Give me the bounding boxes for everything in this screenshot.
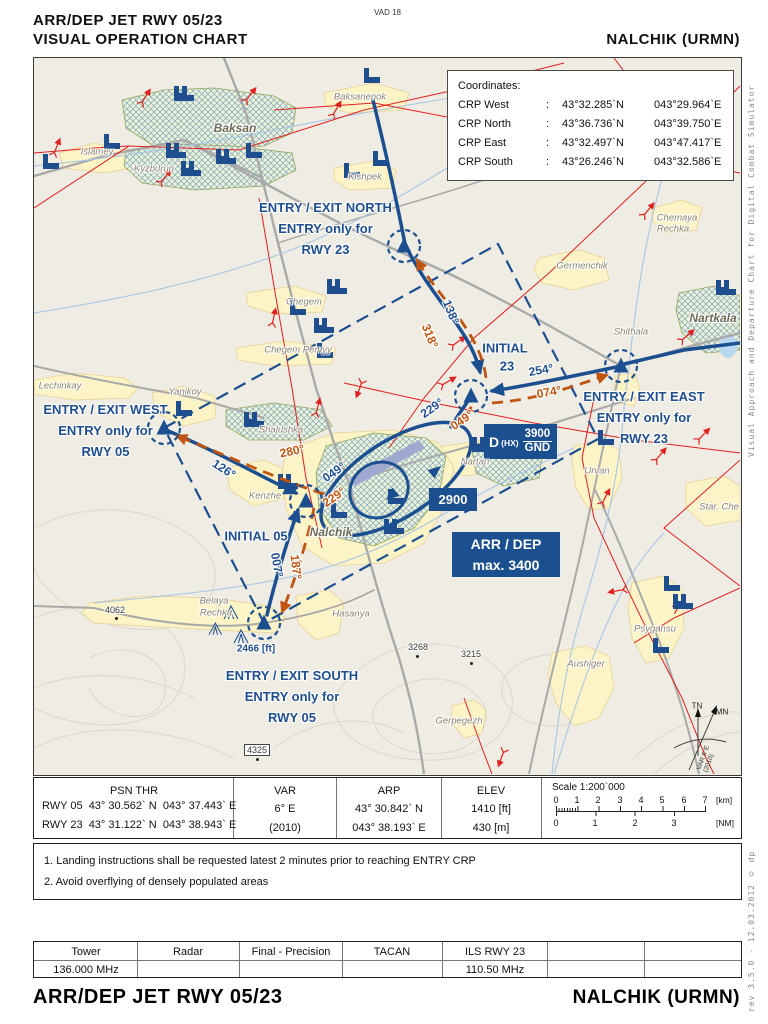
place-chegem-pervyy: Chegem Pervyy	[264, 345, 332, 356]
place-shalushka: Shalushka	[259, 425, 303, 436]
ils-frequency: 110.50 MHz	[466, 964, 525, 976]
place-nalchik: Nalchik	[310, 525, 353, 539]
entry-label-east: ENTRY / EXIT EAST ENTRY only for RWY 23	[578, 386, 710, 449]
spot-height-4062: 4062	[105, 605, 125, 615]
psn-rwy23-row: RWY 23 43° 31.122` N 043° 38.943` E	[42, 819, 236, 831]
place-nartkala: Nartkala	[689, 311, 736, 325]
place-yanikoy: Yanikoy	[168, 387, 201, 398]
spot-height-3268: 3268	[408, 642, 428, 652]
arp-lon: 043° 38.193` E	[352, 822, 426, 834]
tower-header: Tower	[71, 946, 100, 958]
tower-frequency: 136.000 MHz	[53, 964, 118, 976]
place-chegem: Chegem	[286, 297, 322, 308]
divider	[644, 942, 645, 977]
place-lechinkay: Lechinkay	[39, 381, 82, 392]
divider	[34, 960, 741, 961]
arrdep-max-alt-box: ARR / DEP max. 3400	[452, 532, 560, 577]
footer-airport: NALCHIK (URMN)	[573, 987, 740, 1009]
spot-height-4325: 4325	[244, 744, 270, 756]
spot-dot-4062	[115, 617, 118, 620]
note-1: 1. Landing instructions shall be request…	[44, 851, 731, 872]
arp-lat: 43° 30.842` N	[355, 803, 423, 815]
place-star-che: Star. Che	[699, 502, 739, 513]
divider	[547, 942, 548, 977]
entry-label-north: ENTRY / EXIT NORTH ENTRY only for RWY 23	[233, 197, 418, 260]
place-belaya-rechka-2: Rechka	[200, 608, 232, 619]
elev-ft: 1410 [ft]	[471, 803, 511, 815]
divider	[541, 778, 542, 838]
initial-05-label: INITIAL 05	[224, 526, 287, 547]
psn-rwy05-row: RWY 05 43° 30.562` N 043° 37.443` E	[42, 800, 236, 812]
var-year: (2010)	[269, 822, 301, 834]
magnetic-north-label: MN	[716, 708, 728, 717]
divider	[137, 942, 138, 977]
place-urvan: Urvan	[584, 466, 609, 477]
divider	[442, 942, 443, 977]
scale-bar: Scale 1:200`000 0 1 2 3 4 5 6 7 [km] 0 1…	[550, 782, 738, 836]
crp-west-row: CRP West:43°32.285`N043°29.964`E	[458, 96, 723, 115]
elev-header: ELEV	[477, 785, 505, 797]
divider	[336, 778, 337, 838]
arp-header: ARP	[378, 785, 401, 797]
divider	[441, 778, 442, 838]
place-kishpek: Kishpek	[348, 172, 382, 183]
course-187: 187°	[288, 554, 305, 580]
km-unit: [km]	[716, 795, 732, 805]
place-baksanenok: Baksanenok	[334, 92, 386, 103]
var-header: VAR	[274, 785, 296, 797]
chart-title: ARR/DEP JET RWY 05/23	[33, 12, 223, 29]
chart-code: VAD 18	[374, 8, 401, 17]
place-chemaya-rechka-2: Rechka	[657, 224, 689, 235]
margin-note-top: Visual Approach and Departure Chart for …	[747, 57, 756, 457]
divider	[239, 942, 240, 977]
place-aushiger: Aushiger	[567, 659, 605, 670]
place-hasanya: Hasanya	[332, 609, 370, 620]
scale-title: Scale 1:200`000	[552, 782, 625, 793]
crp-north-row: CRP North:43°36.736`N043°39.750`E	[458, 115, 723, 134]
crp-east-row: CRP East:43°32.497`N043°47.417`E	[458, 134, 723, 153]
chart-page: ARR/DEP JET RWY 05/23 VISUAL OPERATION C…	[0, 0, 768, 1024]
note-2: 2. Avoid overflying of densely populated…	[44, 872, 731, 893]
place-nartan: Nartan	[461, 457, 490, 468]
place-shithala: Shithala	[614, 327, 648, 338]
danger-area-box: D (HX) 3900 GND	[484, 424, 557, 459]
true-north-label: TN	[692, 702, 703, 711]
place-islamey: Islamey	[81, 147, 114, 158]
place-psygansu: Psygansu	[634, 624, 676, 635]
initial-23-number: 23	[500, 356, 514, 377]
divider	[342, 942, 343, 977]
spot-height-3215: 3215	[461, 649, 481, 659]
place-kyzburun: Kyzburun	[134, 164, 174, 175]
notes-box: 1. Landing instructions shall be request…	[33, 843, 742, 900]
nm-ticks	[556, 811, 675, 816]
place-belaya-rechka-1: Belaya	[199, 596, 228, 607]
footer-title: ARR/DEP JET RWY 05/23	[33, 986, 282, 1009]
nm-unit: [NM]	[716, 818, 734, 828]
place-gerpegezh: Gerpegezh	[435, 716, 482, 727]
final-precision-header: Final - Precision	[252, 946, 331, 958]
radar-header: Radar	[173, 946, 203, 958]
entry-label-west: ENTRY / EXIT WEST ENTRY only for RWY 05	[38, 399, 173, 462]
place-kenzhe: Kenzhe	[249, 491, 281, 502]
airport-info-table: PSN THR RWY 05 43° 30.562` N 043° 37.443…	[33, 777, 742, 839]
spot-dot-3215	[470, 662, 473, 665]
entry-label-south: ENTRY / EXIT SOUTH ENTRY only for RWY 05	[203, 665, 381, 728]
place-chemaya-rechka-1: Chemaya	[657, 213, 698, 224]
tacan-header: TACAN	[374, 946, 410, 958]
airport-name-top: NALCHIK (URMN)	[606, 31, 740, 48]
margin-note-bottom: rev 3.5.0 - 12.03.2012 © dp	[747, 812, 756, 1012]
psn-thr-header: PSN THR	[110, 785, 158, 797]
frequency-table: Tower Radar Final - Precision TACAN ILS …	[33, 941, 742, 978]
spot-dot-4325	[256, 758, 259, 761]
crp-south-row: CRP South:43°26.246`N043°32.586`E	[458, 153, 723, 172]
place-germenchik: Germenchik	[556, 261, 607, 272]
var-value: 6° E	[275, 803, 296, 815]
ils-header: ILS RWY 23	[465, 946, 525, 958]
place-baksan: Baksan	[214, 121, 257, 135]
circuit-altitude-box: 2900	[429, 488, 477, 511]
chart-subtitle: VISUAL OPERATION CHART	[33, 31, 248, 48]
crp-south-elevation: 2466 [ft]	[237, 644, 275, 655]
coordinates-box: Coordinates: CRP West:43°32.285`N043°29.…	[447, 70, 734, 181]
elev-m: 430 [m]	[473, 822, 510, 834]
spot-dot-3268	[416, 655, 419, 658]
coordinates-title: Coordinates:	[458, 77, 723, 96]
